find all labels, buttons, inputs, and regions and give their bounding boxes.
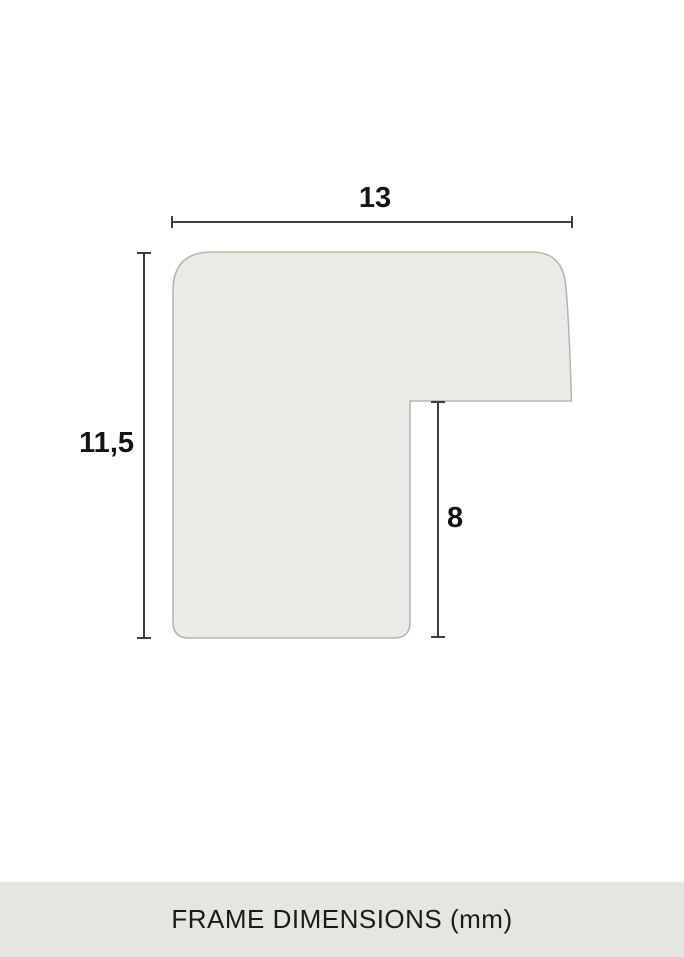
height-dimension-line — [137, 253, 151, 638]
dimension-label-height: 11,5 — [48, 429, 134, 458]
frame-profile-shape — [173, 252, 572, 638]
dimension-label-width: 13 — [325, 184, 425, 213]
frame-dimensions-diagram: 13 11,5 8 FRAME DIMENSIONS (mm) — [0, 0, 684, 957]
caption-text: FRAME DIMENSIONS (mm) — [171, 904, 512, 935]
width-dimension-line — [172, 216, 572, 228]
dimension-label-rabbet-height: 8 — [447, 504, 463, 533]
caption-bar: FRAME DIMENSIONS (mm) — [0, 882, 684, 957]
frame-cross-section-drawing — [0, 0, 684, 957]
rabbet-dimension-line — [431, 402, 445, 637]
